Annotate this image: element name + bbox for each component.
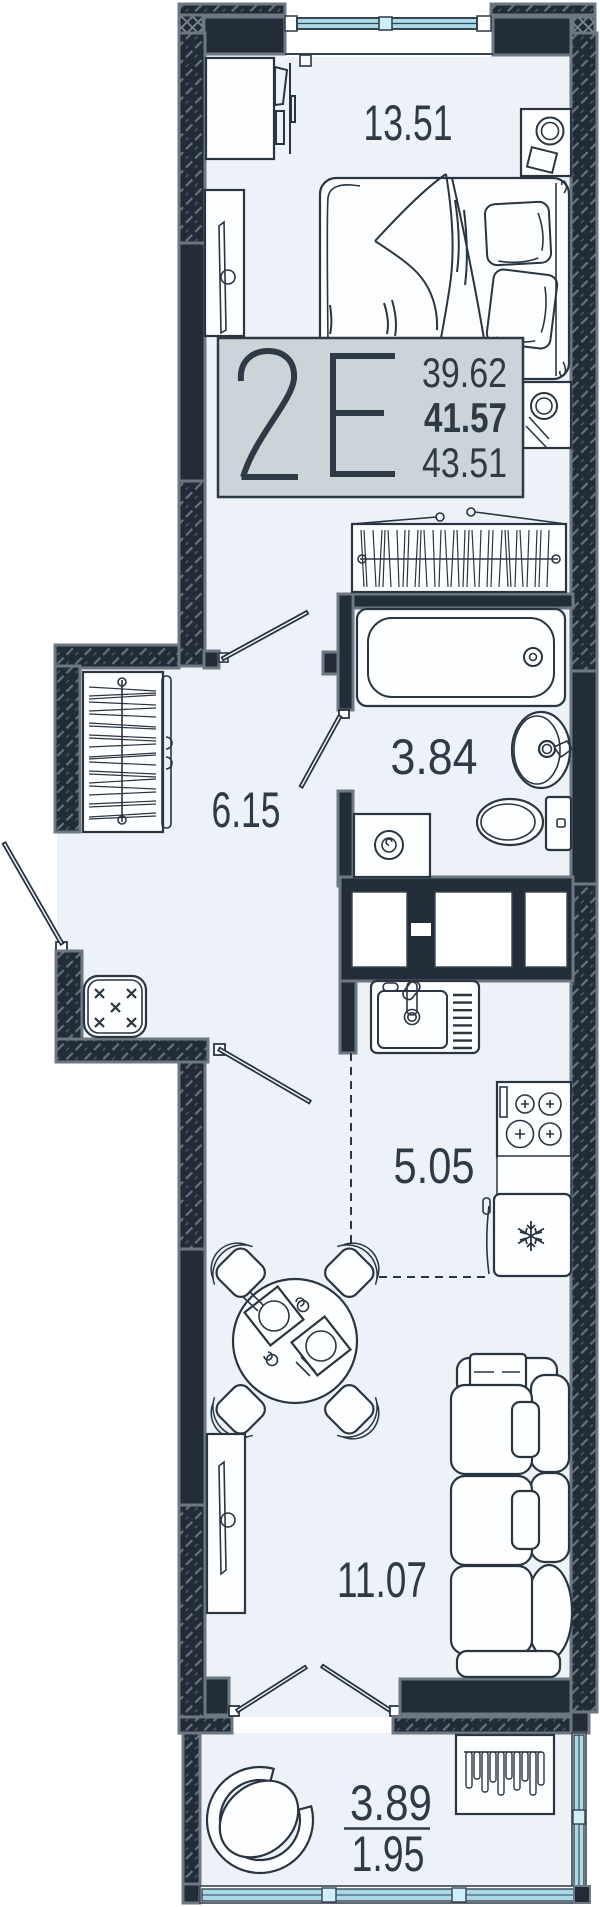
svg-text:3.89: 3.89	[350, 1775, 432, 1831]
svg-text:6.15: 6.15	[212, 782, 281, 838]
svg-text:39.62: 39.62	[422, 349, 507, 396]
svg-text:5.05: 5.05	[394, 1138, 475, 1194]
svg-text:41.57: 41.57	[424, 394, 507, 441]
svg-text:43.51: 43.51	[422, 439, 507, 486]
svg-text:1.95: 1.95	[352, 1826, 425, 1882]
svg-text:3.84: 3.84	[391, 729, 478, 785]
svg-text:13.51: 13.51	[364, 95, 453, 151]
svg-text:11.07: 11.07	[337, 1552, 427, 1608]
